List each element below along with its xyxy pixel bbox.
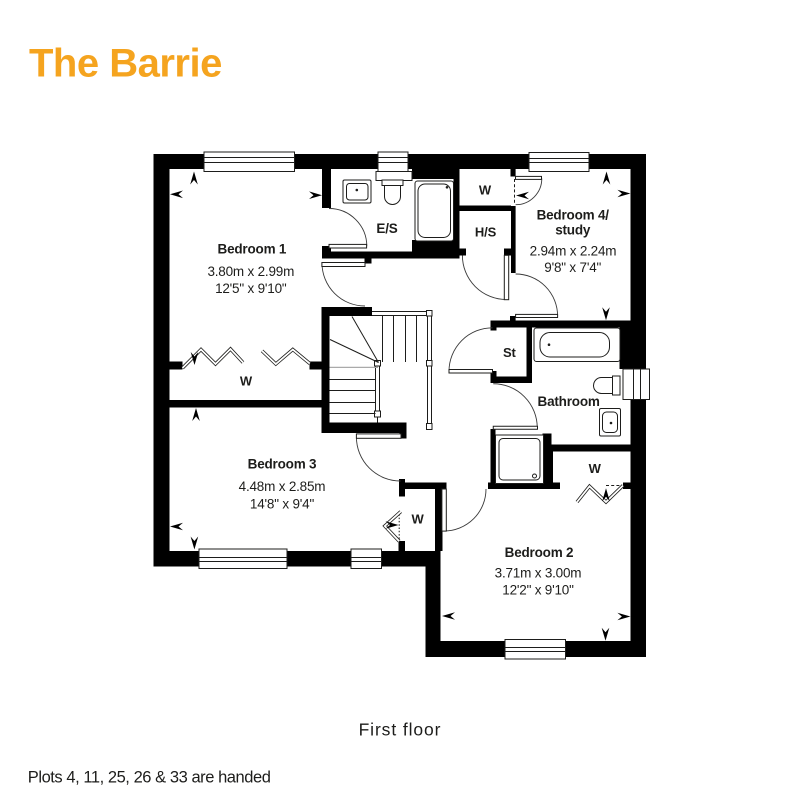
- svg-text:Bathroom: Bathroom: [538, 394, 600, 409]
- svg-text:12'2" x 9'10": 12'2" x 9'10": [502, 583, 574, 598]
- svg-text:H/S: H/S: [475, 225, 497, 240]
- svg-text:12'5" x 9'10": 12'5" x 9'10": [215, 281, 287, 296]
- svg-text:St: St: [503, 345, 517, 360]
- svg-text:2.94m x 2.24m: 2.94m x 2.24m: [530, 244, 617, 259]
- svg-text:W: W: [589, 461, 602, 476]
- svg-text:9'8" x 7'4": 9'8" x 7'4": [544, 260, 601, 275]
- svg-text:Bedroom 2: Bedroom 2: [505, 545, 574, 560]
- svg-text:The Barrie: The Barrie: [29, 42, 222, 86]
- svg-text:Bedroom 3: Bedroom 3: [248, 457, 317, 472]
- svg-text:W: W: [412, 512, 425, 527]
- svg-text:3.80m x 2.99m: 3.80m x 2.99m: [207, 264, 294, 279]
- svg-text:Bedroom 1: Bedroom 1: [218, 241, 287, 256]
- svg-text:4.48m x 2.85m: 4.48m x 2.85m: [239, 479, 326, 494]
- svg-text:Bedroom 4/: Bedroom 4/: [537, 208, 610, 223]
- svg-text:W: W: [479, 183, 492, 198]
- svg-text:W: W: [240, 374, 253, 389]
- svg-text:E/S: E/S: [376, 221, 397, 236]
- svg-text:3.71m x 3.00m: 3.71m x 3.00m: [495, 566, 582, 581]
- svg-text:First floor: First floor: [359, 720, 442, 740]
- svg-text:Plots 4, 11, 25, 26 & 33 are h: Plots 4, 11, 25, 26 & 33 are handed: [28, 769, 271, 787]
- svg-text:14'8" x 9'4": 14'8" x 9'4": [250, 497, 315, 512]
- svg-text:study: study: [555, 223, 591, 238]
